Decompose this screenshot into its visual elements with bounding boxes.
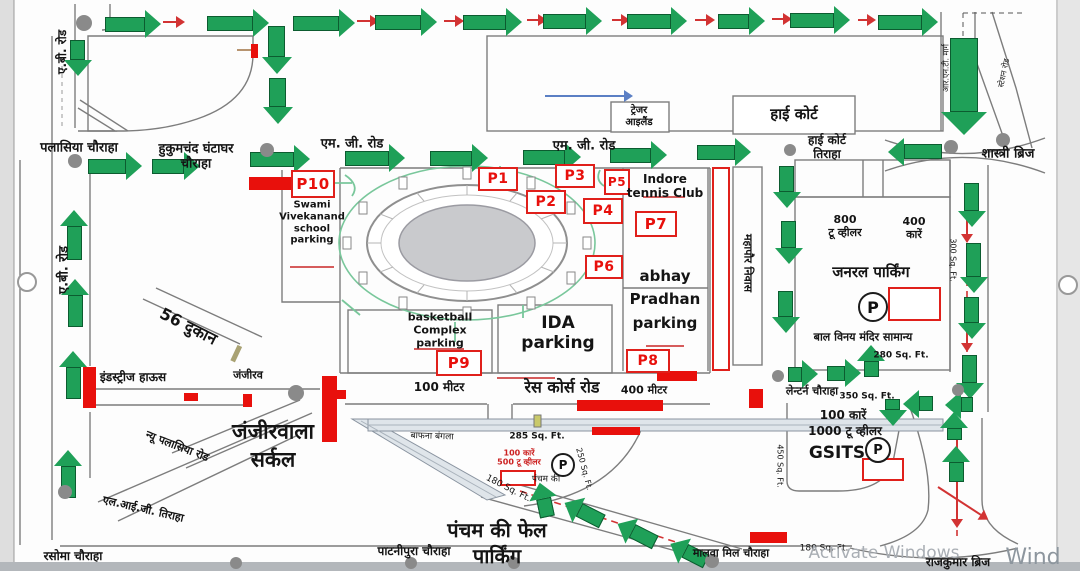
- label-300-sqft: 300 Sq. Ft.: [948, 238, 957, 281]
- traffic-island: [772, 370, 784, 382]
- page-dot: [1058, 275, 1078, 295]
- traffic-flow-arrow: [540, 483, 547, 517]
- label-100-cars: 100 कारें: [820, 408, 866, 422]
- barricade: [83, 367, 96, 408]
- label-general-parking: जनरल पार्किंग: [832, 264, 909, 282]
- parking-symbol-icon: P: [865, 437, 891, 463]
- watermark-wind: Wind: [1005, 545, 1060, 571]
- barricade: [243, 394, 252, 407]
- label-industries-house: इंडस्ट्रीज हाऊस: [100, 370, 166, 384]
- traffic-island: [260, 143, 274, 157]
- label-ab-road: ए.बी. रोड: [56, 246, 71, 294]
- parking-traffic-map: ए.बी. रोडए.बी. रोडपलासिया चौराहाहुकुमचंद…: [0, 0, 1080, 571]
- parking-marker-p8: P8: [626, 349, 670, 373]
- parking-marker-p7: P7: [635, 211, 677, 237]
- parking-marker-p10: P10: [291, 170, 335, 198]
- label-pancham-ki-phel-parking: पंचम की फेल पार्किंग: [447, 517, 546, 569]
- parking-marker-p2: P2: [526, 190, 566, 214]
- barricade: [249, 177, 295, 190]
- traffic-island: [996, 133, 1010, 147]
- label-malwa-mill-chauraha: मालवा मिल चौराहा: [693, 548, 769, 561]
- label-indore-tennis-club: Indore tennis Club: [627, 172, 703, 200]
- traffic-island: [952, 384, 964, 396]
- label-janjeerwala-circle: जंजीरवाला सर्कल: [232, 418, 314, 475]
- traffic-island: [76, 15, 92, 31]
- label-palasia-chauraha: पलासिया चौराहा: [40, 140, 118, 155]
- parking-marker-p6: P6: [585, 255, 623, 279]
- label-gsits: GSITS: [809, 443, 865, 463]
- parking-marker-p3: P3: [555, 164, 595, 188]
- label-ab-road-top: ए.बी. रोड: [55, 30, 69, 74]
- parking-marker-p9: P9: [436, 350, 482, 376]
- parking-symbol-icon: P: [858, 292, 888, 322]
- traffic-island: [405, 557, 417, 569]
- barricade: [750, 532, 787, 543]
- barricade: [577, 400, 663, 411]
- label-patnipura-chauraha: पाटनीपुरा चौराहा: [378, 544, 451, 558]
- barricade: [337, 390, 346, 399]
- barricade: [251, 44, 258, 58]
- label-350-sqft: 350 Sq. Ft.: [839, 392, 894, 403]
- traffic-island: [58, 485, 72, 499]
- reserved-zone-box: [888, 287, 941, 321]
- label-basketball-complex-parking: basketball Complex parking: [408, 312, 472, 351]
- label-race-course-road: रेस कोर्स रोड: [525, 379, 600, 398]
- label-lantern-chauraha: लेन्टर्न चौराहा: [786, 386, 838, 399]
- label-100-meter: 100 मीटर: [414, 380, 464, 394]
- label-swami-vivekanand-school-parking: Swami Vivekanand school parking: [279, 199, 345, 246]
- barricade: [322, 376, 337, 442]
- traffic-island: [68, 154, 82, 168]
- label-800-two-wheeler: 800 टू व्हीलर: [828, 214, 861, 240]
- traffic-island: [288, 385, 304, 401]
- label-high-court: हाई कोर्ट: [770, 106, 817, 124]
- label-1000-two-wheeler: 1000 टू व्हीलर: [808, 424, 882, 438]
- label-450-sqft: 450 Sq. Ft.: [775, 444, 784, 487]
- label-mahapaur-niwas: महापौर निवास: [741, 234, 754, 292]
- label-abhay-pradhan-parking: abhay Pradhan parking: [630, 265, 701, 335]
- page-dot: [17, 272, 37, 292]
- traffic-island: [784, 144, 796, 156]
- label-400-meter: 400 मीटर: [621, 385, 667, 398]
- label-mg-road-1: एम. जी. रोड: [321, 136, 384, 151]
- label-shastri-bridge: शास्त्री ब्रिज: [982, 146, 1035, 161]
- label-bal-vinay-mandir-samanya: बाल विनय मंदिर सामान्य: [814, 332, 913, 345]
- traffic-island: [230, 557, 242, 569]
- page-edge-left: [0, 0, 14, 571]
- label-mg-road-2: एम. जी. रोड: [553, 138, 616, 153]
- parking-symbol-icon: P: [551, 453, 575, 477]
- label-treasure-island: ट्रेजर आइलैंड: [625, 105, 652, 129]
- label-rasoma-chauraha: रसोमा चौराहा: [44, 549, 103, 563]
- label-janjeer-street: जंजीरव: [233, 370, 263, 383]
- label-ida-parking: IDA parking: [521, 313, 594, 353]
- parking-marker-p4: P4: [583, 198, 623, 224]
- label-hukumchand-ghantaghar-chauraha: हुकुमचंद घंटाघर चौराहा: [159, 142, 234, 173]
- label-100-cars-500-two-wheeler: 100 कारें 500 टू व्हीलर: [497, 449, 541, 468]
- label-bafna-bangla: बाफना बंगला: [410, 431, 454, 443]
- barricade: [592, 427, 640, 435]
- watermark-activate-windows: Activate Windows: [809, 543, 960, 563]
- reserved-zone-box: [712, 167, 730, 371]
- parking-marker-p1: P1: [478, 167, 518, 191]
- label-rnt-marg: आर.एन.टी. मार्ग: [941, 44, 950, 92]
- barricade: [749, 389, 763, 408]
- barricade: [184, 393, 198, 401]
- label-pancham-ki: पंचम की: [532, 475, 560, 486]
- label-285-sqft: 285 Sq. Ft.: [509, 432, 564, 443]
- label-280-sqft: 280 Sq. Ft.: [873, 351, 928, 362]
- label-400-cars: 400 कारें: [903, 216, 926, 242]
- label-high-court-tiraha: हाई कोर्ट तिराहा: [808, 133, 846, 161]
- stadium-field: [399, 205, 535, 281]
- traffic-island: [944, 140, 958, 154]
